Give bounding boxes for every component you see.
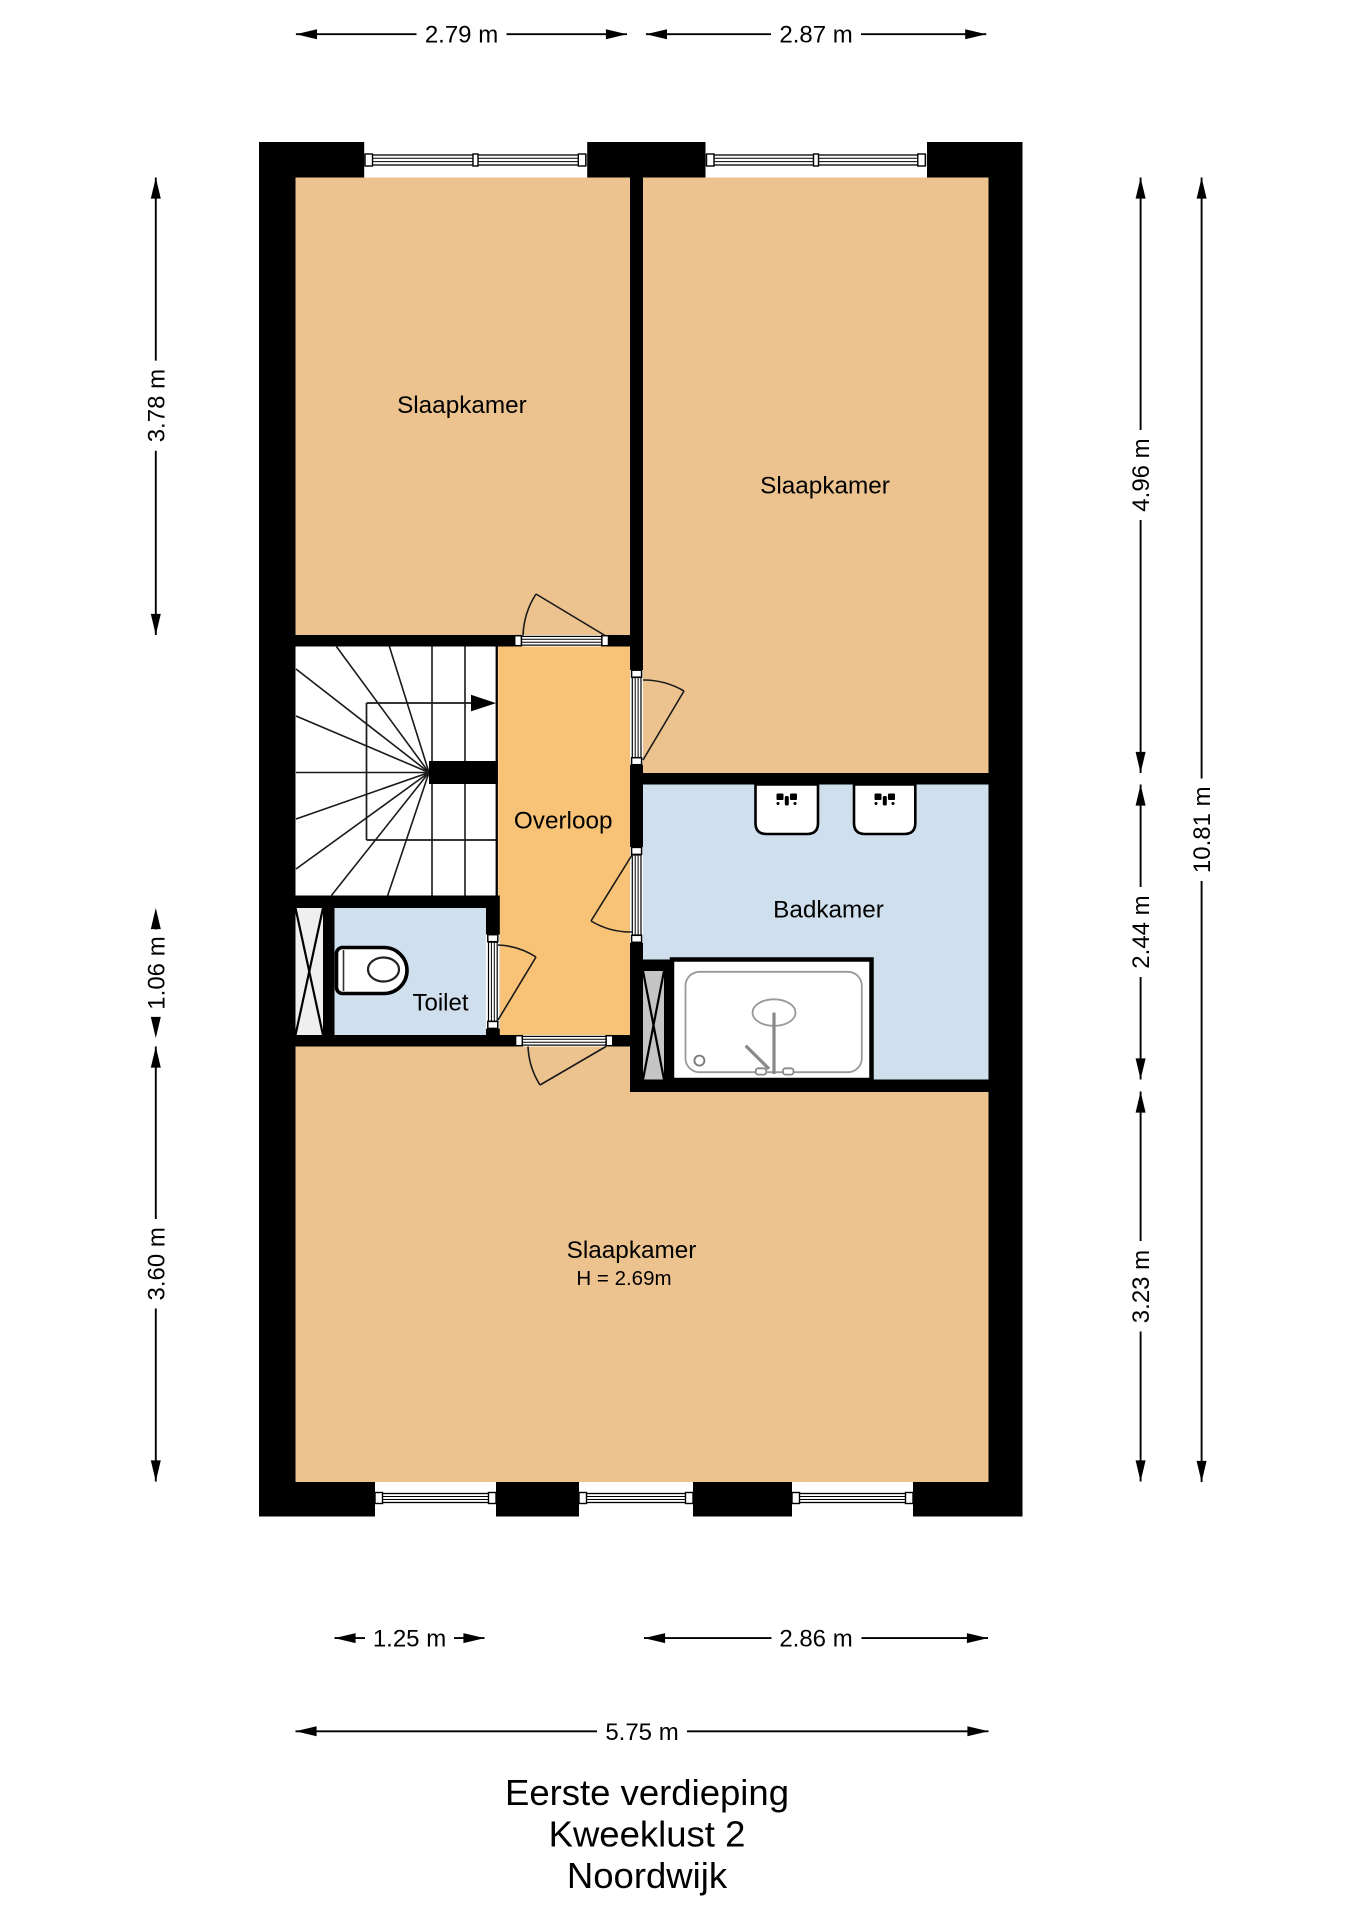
- svg-text:Slaapkamer: Slaapkamer: [567, 1237, 697, 1264]
- svg-text:Slaapkamer: Slaapkamer: [397, 392, 527, 419]
- svg-text:Badkamer: Badkamer: [773, 897, 884, 924]
- svg-text:Overloop: Overloop: [514, 808, 613, 835]
- svg-text:Eerste verdieping: Eerste verdieping: [505, 1772, 789, 1813]
- svg-text:H = 2.69m: H = 2.69m: [576, 1267, 671, 1290]
- svg-text:3.78 m: 3.78 m: [143, 369, 170, 442]
- svg-text:Toilet: Toilet: [412, 990, 468, 1017]
- svg-text:4.96 m: 4.96 m: [1128, 438, 1155, 511]
- svg-text:3.23 m: 3.23 m: [1128, 1250, 1155, 1323]
- svg-text:3.60 m: 3.60 m: [143, 1227, 170, 1300]
- svg-text:2.86 m: 2.86 m: [779, 1626, 852, 1653]
- svg-text:5.75 m: 5.75 m: [605, 1719, 678, 1746]
- svg-text:Noordwijk: Noordwijk: [567, 1855, 728, 1896]
- svg-text:2.79 m: 2.79 m: [425, 22, 498, 49]
- svg-text:1.06 m: 1.06 m: [143, 936, 170, 1009]
- svg-text:Slaapkamer: Slaapkamer: [760, 472, 890, 499]
- svg-text:2.44 m: 2.44 m: [1128, 895, 1155, 968]
- svg-text:2.87 m: 2.87 m: [779, 22, 852, 49]
- svg-text:1.25 m: 1.25 m: [373, 1626, 446, 1653]
- svg-text:10.81 m: 10.81 m: [1189, 786, 1216, 873]
- svg-text:Kweeklust 2: Kweeklust 2: [549, 1814, 746, 1855]
